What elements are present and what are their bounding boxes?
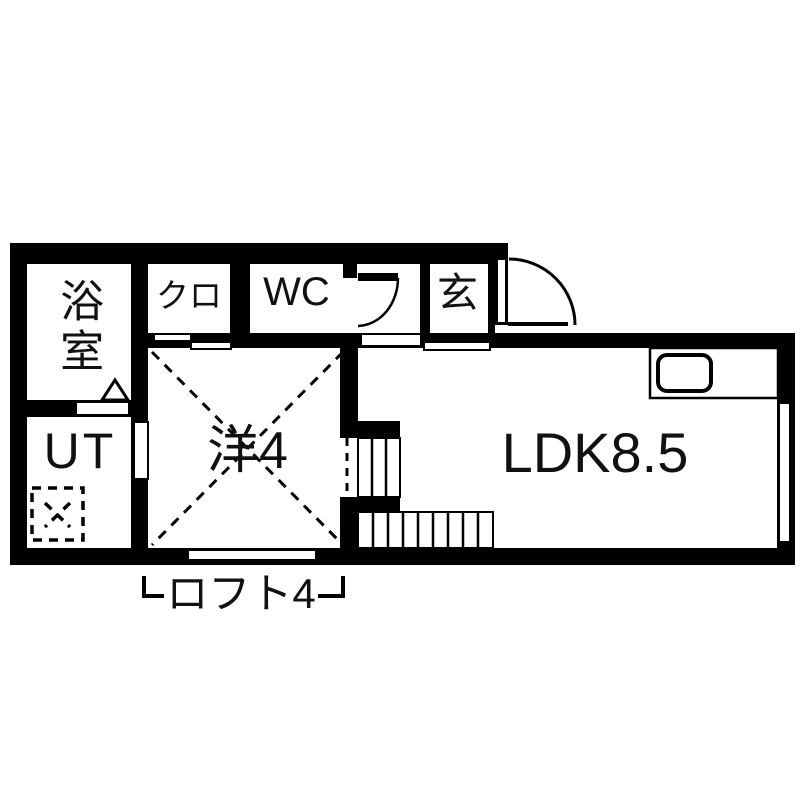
stairs-lower-flight [358,512,493,548]
bath-door-triangle-icon [102,380,128,400]
kitchen-sink-icon [658,355,711,391]
stairs-upper-flight [358,438,400,497]
loft-label: ロフト4 [164,572,318,616]
loft-bracket-right [318,576,345,598]
loft-bracket-left [142,576,164,598]
bath-label: 浴室 [50,268,104,388]
utility-label: UT [27,424,133,478]
western-room-label: 洋4 [150,422,345,480]
floor-plan: 浴室 クロ WC 玄 UT 洋4 LDK8.5 ロフト4 [0,0,800,800]
ldk-label: LDK8.5 [400,423,790,483]
washing-machine-area-icon [32,488,83,540]
toilet-label: WC [250,269,343,315]
plan-linework [0,0,800,800]
wc-door-arc [358,278,398,326]
closet-label: クロ [148,275,230,317]
entrance-label: 玄 [427,271,488,317]
entrance-door-arc [509,259,575,325]
